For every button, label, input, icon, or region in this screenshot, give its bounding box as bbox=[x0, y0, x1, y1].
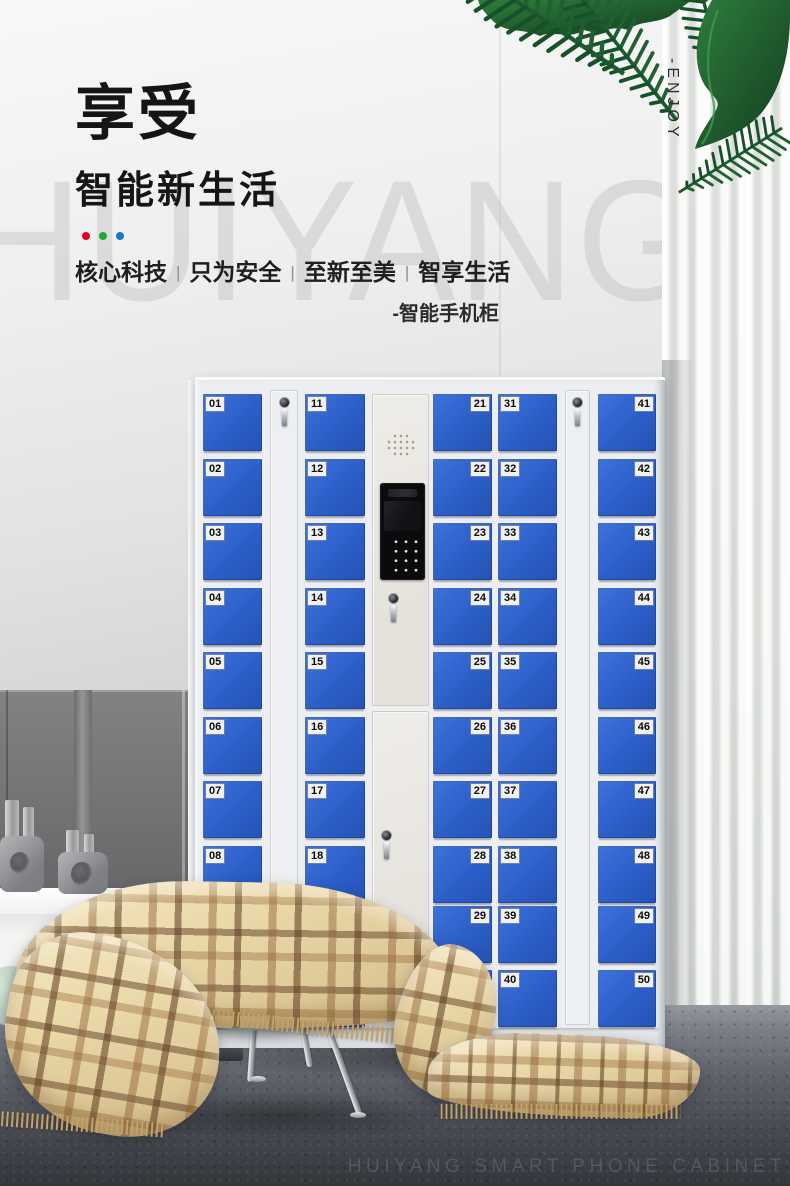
locker-number: 33 bbox=[501, 526, 519, 540]
locker-number: 14 bbox=[308, 591, 326, 605]
blue-dot-icon bbox=[116, 232, 124, 240]
locker-number: 41 bbox=[635, 397, 653, 411]
locker-number: 13 bbox=[308, 526, 326, 540]
locker-door: 35 bbox=[498, 652, 557, 709]
locker-door: 16 bbox=[305, 717, 365, 774]
tagline: 核心科技|只为安全|至新至美|智享生活 bbox=[75, 253, 510, 287]
locker-number: 07 bbox=[206, 784, 224, 798]
blanket-fringe bbox=[441, 1104, 681, 1119]
locker-number: 06 bbox=[206, 720, 224, 734]
locker-door: 24 bbox=[433, 588, 492, 645]
tagline-separator: | bbox=[290, 263, 294, 282]
locker-door: 22 bbox=[433, 459, 492, 516]
locker-number: 48 bbox=[635, 849, 653, 863]
tagline-item: 至新至美 bbox=[304, 259, 396, 285]
locker-number: 05 bbox=[206, 655, 224, 669]
locker-number: 03 bbox=[206, 526, 224, 540]
locker-door: 05 bbox=[203, 652, 262, 709]
locker-door: 01 bbox=[203, 394, 262, 451]
locker-door: 14 bbox=[305, 588, 365, 645]
locker-number: 49 bbox=[635, 909, 653, 923]
locker-door: 28 bbox=[433, 846, 492, 903]
locker-door: 42 bbox=[598, 459, 656, 516]
locker-number: 22 bbox=[471, 462, 489, 476]
locker-door: 41 bbox=[598, 394, 656, 451]
footer-caption: HUIYANG SMART PHONE CABINET bbox=[348, 1156, 786, 1178]
accent-dots bbox=[82, 232, 510, 240]
vertical-slogan: -ENJOY bbox=[663, 58, 681, 141]
decor-vase bbox=[0, 800, 44, 892]
cabinet-col-6: 31323334353637383940 bbox=[498, 377, 557, 1028]
locker-number: 26 bbox=[471, 720, 489, 734]
stool-foot bbox=[250, 1076, 266, 1082]
locker-number: 15 bbox=[308, 655, 326, 669]
locker-door: 44 bbox=[598, 588, 656, 645]
cabinet-col-5: 21222324252627282930 bbox=[433, 377, 492, 1028]
locker-door: 43 bbox=[598, 523, 656, 580]
page-subtitle: 智能新生活 bbox=[75, 159, 510, 214]
locker-number: 28 bbox=[471, 849, 489, 863]
locker-number: 35 bbox=[501, 655, 519, 669]
hanging-key-icon bbox=[575, 409, 580, 426]
locker-door: 17 bbox=[305, 781, 365, 838]
locker-door: 46 bbox=[598, 717, 656, 774]
locker-number: 40 bbox=[501, 973, 519, 987]
speaker-grille-icon bbox=[386, 433, 416, 457]
locker-door: 47 bbox=[598, 781, 656, 838]
locker-door: 34 bbox=[498, 588, 557, 645]
locker-number: 27 bbox=[471, 784, 489, 798]
keypad-icon bbox=[389, 535, 419, 573]
locker-door: 03 bbox=[203, 523, 262, 580]
locker-door: 32 bbox=[498, 459, 557, 516]
locker-number: 08 bbox=[206, 849, 224, 863]
hero-text-block: 享受 智能新生活 核心科技|只为安全|至新至美|智享生活 -智能手机柜 bbox=[75, 84, 510, 326]
keyhole-icon bbox=[388, 593, 399, 604]
product-note: -智能手机柜 bbox=[75, 297, 499, 326]
locker-door: 11 bbox=[305, 394, 365, 451]
locker-door: 33 bbox=[498, 523, 557, 580]
hanging-key-icon bbox=[282, 409, 287, 426]
keyhole-icon bbox=[381, 830, 392, 841]
locker-door: 40 bbox=[498, 970, 557, 1027]
locker-door: 23 bbox=[433, 523, 492, 580]
locker-door: 21 bbox=[433, 394, 492, 451]
locker-number: 38 bbox=[501, 849, 519, 863]
locker-door: 45 bbox=[598, 652, 656, 709]
locker-door: 37 bbox=[498, 781, 557, 838]
tagline-separator: | bbox=[405, 263, 409, 282]
locker-number: 23 bbox=[471, 526, 489, 540]
locker-number: 50 bbox=[635, 973, 653, 987]
keyhole-with-key-icon bbox=[573, 397, 583, 426]
screen-glass bbox=[384, 501, 421, 531]
locker-number: 29 bbox=[471, 909, 489, 923]
keyhole-icon bbox=[572, 397, 583, 408]
cabinet-col-8: 41424344454647484950 bbox=[598, 377, 656, 1028]
locker-number: 21 bbox=[471, 397, 489, 411]
locker-number: 12 bbox=[308, 462, 326, 476]
locker-door: 49 bbox=[598, 906, 656, 963]
locker-number: 36 bbox=[501, 720, 519, 734]
locker-number: 18 bbox=[308, 849, 326, 863]
locker-door: 07 bbox=[203, 781, 262, 838]
locker-door: 38 bbox=[498, 846, 557, 903]
locker-door: 25 bbox=[433, 652, 492, 709]
locker-door: 50 bbox=[598, 970, 656, 1027]
locker-number: 43 bbox=[635, 526, 653, 540]
stool-foot bbox=[350, 1112, 366, 1118]
cabinet-col-7 bbox=[563, 377, 592, 1028]
red-dot-icon bbox=[82, 232, 90, 240]
control-panel-door bbox=[372, 394, 429, 706]
tagline-item: 只为安全 bbox=[189, 259, 281, 285]
locker-door: 04 bbox=[203, 588, 262, 645]
lock-column-door bbox=[565, 390, 590, 1025]
green-dot-icon bbox=[99, 232, 107, 240]
keyhole-with-key-icon bbox=[279, 397, 289, 426]
decor-vase bbox=[58, 830, 108, 894]
locker-number: 04 bbox=[206, 591, 224, 605]
locker-number: 46 bbox=[635, 720, 653, 734]
locker-door: 36 bbox=[498, 717, 557, 774]
panel-seam bbox=[182, 690, 185, 892]
locker-number: 16 bbox=[308, 720, 326, 734]
tagline-separator: | bbox=[176, 263, 180, 282]
keyhole-icon bbox=[279, 397, 290, 408]
locker-number: 34 bbox=[501, 591, 519, 605]
locker-door: 15 bbox=[305, 652, 365, 709]
vase-hole bbox=[71, 862, 93, 886]
hanging-key-icon bbox=[384, 842, 389, 859]
locker-door: 48 bbox=[598, 846, 656, 903]
locker-number: 01 bbox=[206, 397, 224, 411]
vase-hole bbox=[10, 852, 30, 874]
locker-door: 13 bbox=[305, 523, 365, 580]
camera-icon bbox=[388, 489, 417, 497]
locker-number: 42 bbox=[635, 462, 653, 476]
page-title: 享受 bbox=[75, 84, 510, 144]
locker-door: 12 bbox=[305, 459, 365, 516]
locker-number: 47 bbox=[635, 784, 653, 798]
locker-number: 39 bbox=[501, 909, 519, 923]
locker-number: 02 bbox=[206, 462, 224, 476]
locker-number: 17 bbox=[308, 784, 326, 798]
keyhole-with-key-icon bbox=[381, 830, 391, 859]
locker-number: 25 bbox=[471, 655, 489, 669]
locker-number: 11 bbox=[308, 397, 326, 411]
locker-door: 02 bbox=[203, 459, 262, 516]
tagline-item: 智享生活 bbox=[418, 259, 510, 285]
locker-door: 27 bbox=[433, 781, 492, 838]
locker-number: 31 bbox=[501, 397, 519, 411]
hanging-key-icon bbox=[391, 605, 396, 622]
locker-door: 31 bbox=[498, 394, 557, 451]
locker-door: 39 bbox=[498, 906, 557, 963]
locker-door: 06 bbox=[203, 717, 262, 774]
tagline-item: 核心科技 bbox=[75, 259, 167, 285]
locker-number: 24 bbox=[471, 591, 489, 605]
control-screen bbox=[380, 483, 425, 580]
locker-door: 26 bbox=[433, 717, 492, 774]
locker-number: 32 bbox=[501, 462, 519, 476]
keyhole-with-key-icon bbox=[388, 593, 398, 622]
locker-number: 44 bbox=[635, 591, 653, 605]
locker-number: 45 bbox=[635, 655, 653, 669]
locker-number: 37 bbox=[501, 784, 519, 798]
